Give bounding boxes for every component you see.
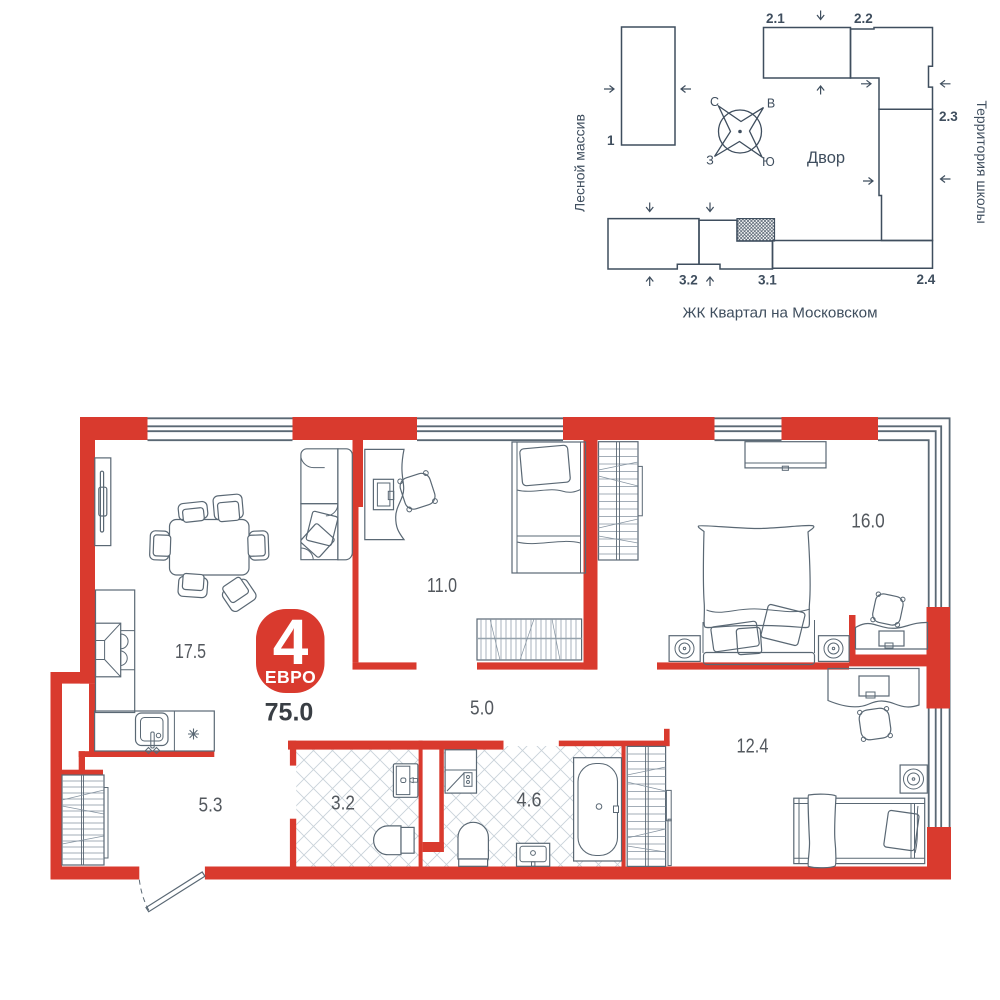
svg-text:2.1: 2.1 [766, 11, 785, 26]
svg-text:С: С [710, 95, 719, 109]
svg-text:ЖК Квартал на Московском: ЖК Квартал на Московском [682, 305, 877, 322]
svg-text:2.2: 2.2 [854, 11, 873, 26]
svg-text:Двор: Двор [807, 149, 845, 167]
svg-text:3.2: 3.2 [679, 273, 698, 288]
svg-text:16.0: 16.0 [851, 510, 884, 533]
svg-text:Лесной массив: Лесной массив [572, 114, 588, 212]
svg-text:2.3: 2.3 [939, 109, 958, 124]
svg-text:4.6: 4.6 [516, 790, 541, 812]
svg-text:Ю: Ю [762, 155, 775, 169]
svg-text:3.2: 3.2 [331, 792, 355, 815]
svg-text:17.5: 17.5 [175, 639, 206, 662]
svg-text:Территория школы: Территория школы [974, 100, 990, 223]
svg-text:В: В [767, 97, 775, 111]
svg-text:11.0: 11.0 [427, 573, 457, 596]
svg-text:12.4: 12.4 [737, 734, 769, 757]
svg-text:ЕВРО: ЕВРО [265, 667, 316, 687]
svg-text:5.3: 5.3 [199, 794, 223, 817]
svg-text:2.4: 2.4 [917, 272, 936, 287]
svg-text:З: З [706, 154, 714, 168]
svg-text:5.0: 5.0 [470, 697, 494, 720]
svg-text:1: 1 [607, 133, 615, 148]
svg-text:3.1: 3.1 [758, 273, 777, 288]
svg-text:75.0: 75.0 [265, 699, 314, 727]
